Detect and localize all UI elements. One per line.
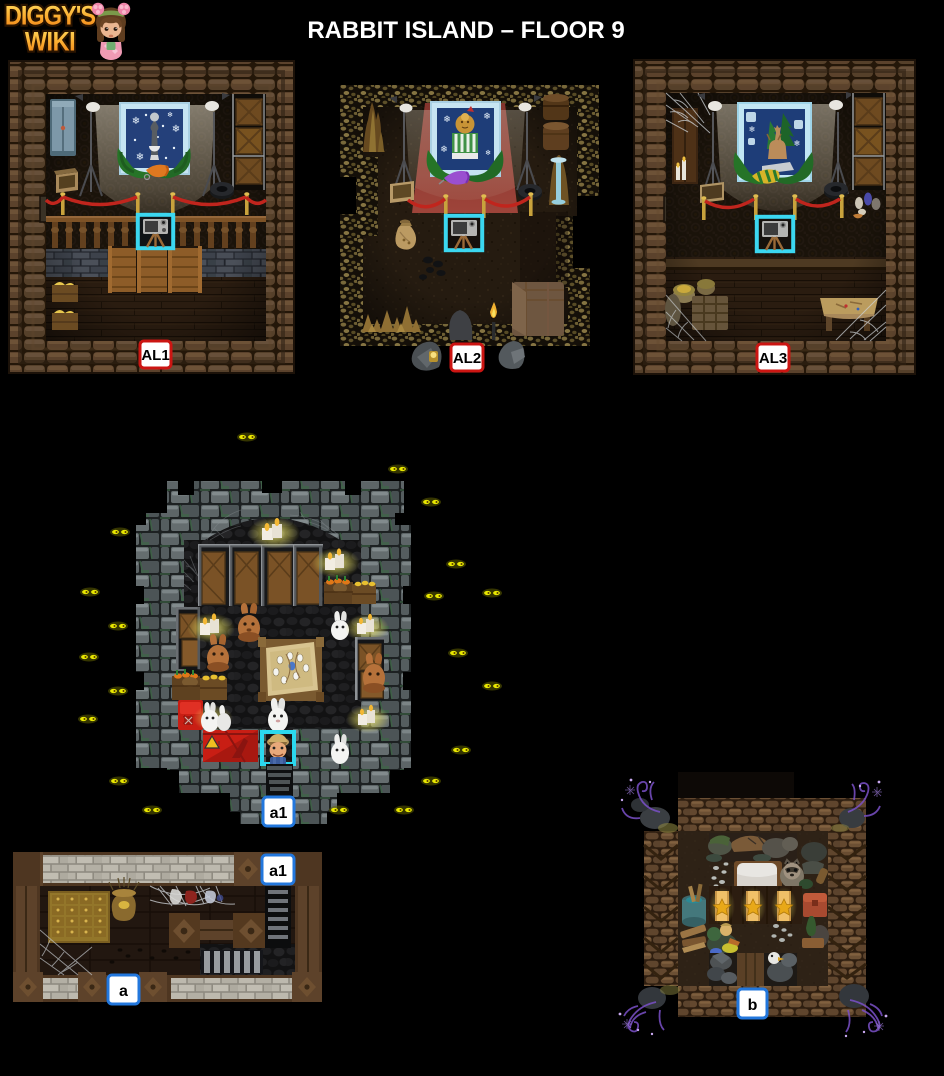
svg-text:a1: a1 <box>270 805 288 822</box>
svg-text:❄: ❄ <box>136 152 144 163</box>
svg-text:a1: a1 <box>269 863 287 880</box>
svg-text:!: ! <box>218 740 220 749</box>
svg-text:AL2: AL2 <box>453 350 481 367</box>
svg-text:AL3: AL3 <box>759 350 787 367</box>
svg-text:❄: ❄ <box>443 114 451 124</box>
svg-text:❄: ❄ <box>172 124 180 135</box>
svg-text:❄: ❄ <box>749 125 756 134</box>
svg-text:❄: ❄ <box>132 116 140 127</box>
svg-text:❄: ❄ <box>440 144 448 154</box>
svg-text:RABBIT ISLAND – FLOOR 9: RABBIT ISLAND – FLOOR 9 <box>307 17 624 44</box>
svg-text:❄: ❄ <box>794 139 801 148</box>
svg-text:❄: ❄ <box>167 111 173 119</box>
svg-text:❄: ❄ <box>485 149 491 157</box>
svg-text:❄: ❄ <box>483 111 491 121</box>
svg-text:b: b <box>748 997 758 1014</box>
svg-text:WIKI: WIKI <box>25 27 75 57</box>
svg-text:a: a <box>119 983 128 1000</box>
svg-text:AL1: AL1 <box>141 347 169 364</box>
